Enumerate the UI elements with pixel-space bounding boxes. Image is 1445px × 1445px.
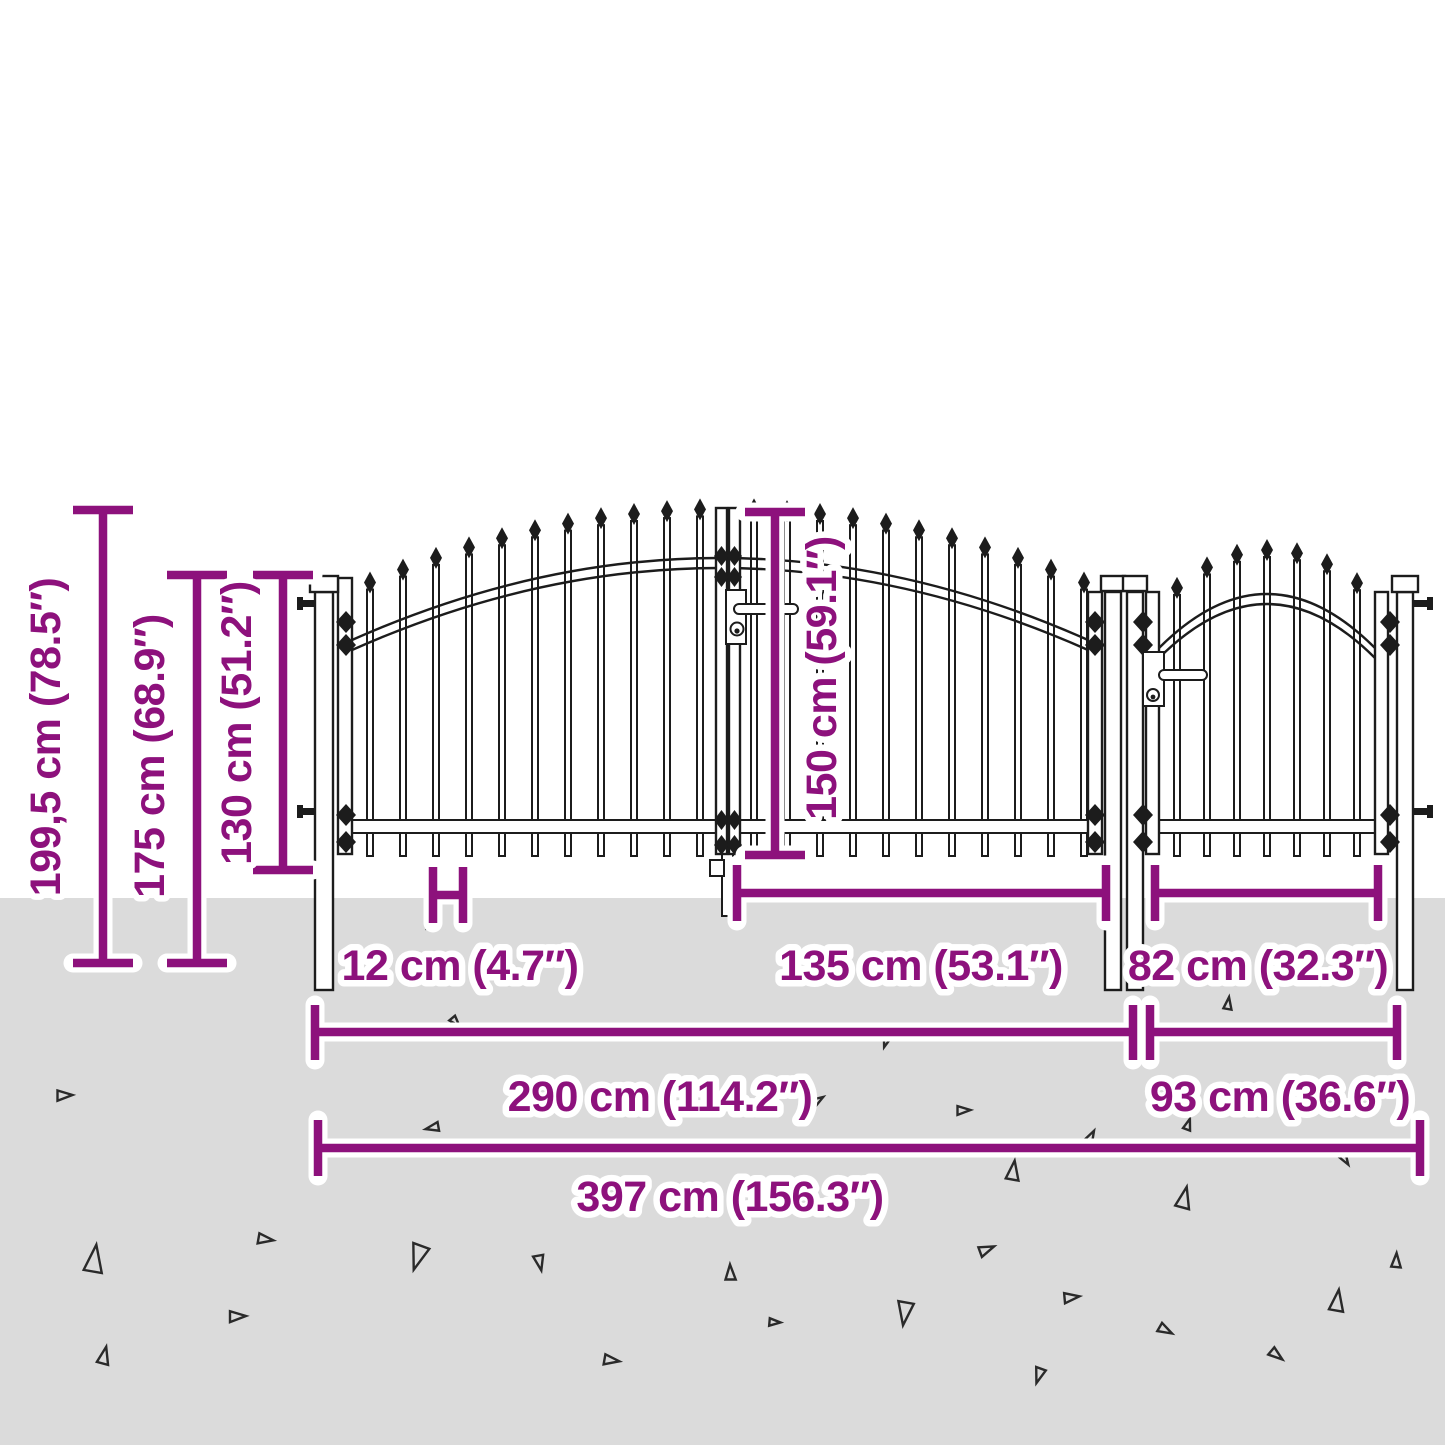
diagram-canvas: 199,5 cm (78.5″) 175 cm (68.9″) 130 cm (…	[0, 0, 1445, 1445]
spear-bar	[364, 572, 376, 856]
dim-leaf-height-label: 150 cm (59.1″)	[798, 536, 846, 820]
dim-double-width-label: 290 cm (114.2″)	[508, 1073, 813, 1121]
spear-bar	[1261, 539, 1273, 856]
spear-bar	[1201, 556, 1213, 856]
single-gate-bottom-rail	[1159, 820, 1375, 833]
spear-bar	[628, 503, 640, 856]
dim-leaf-width-label: 135 cm (53.1″)	[779, 942, 1063, 990]
spear-bar	[397, 559, 409, 856]
spear-bar	[694, 498, 706, 856]
dim-bar-spacing-label: 12 cm (4.7″)	[342, 942, 579, 990]
spear-bar	[1291, 542, 1303, 856]
spear-bar	[595, 507, 607, 856]
dim-total-height-line	[73, 510, 133, 963]
spear-bar	[748, 498, 760, 856]
dim-above-ground-line	[253, 575, 313, 870]
spear-bar	[1045, 559, 1057, 856]
spear-bar	[661, 500, 673, 856]
spear-bar	[430, 547, 442, 856]
dim-post-height-label: 175 cm (68.9″)	[126, 614, 174, 898]
spear-bar	[979, 536, 991, 856]
spear-bar	[496, 527, 508, 856]
dim-total-width-label: 397 cm (156.3″)	[576, 1173, 883, 1221]
spear-bar	[529, 519, 541, 856]
dim-single-width-label: 93 cm (36.6″)	[1150, 1073, 1410, 1121]
dim-small-inner-label: 82 cm (32.3″)	[1128, 942, 1388, 990]
double-gate-left-leaf-bars	[364, 498, 706, 856]
spear-bar	[1321, 553, 1333, 856]
spear-bar	[562, 513, 574, 856]
spear-bar	[1171, 577, 1183, 856]
spear-bar	[1351, 572, 1363, 856]
single-gate-bars	[1171, 539, 1363, 856]
spear-bar	[847, 507, 859, 856]
spear-bar	[880, 513, 892, 856]
spear-bar	[913, 519, 925, 856]
spear-bar	[946, 527, 958, 856]
dim-above-ground-label: 130 cm (51.2″)	[213, 581, 261, 865]
spear-bar	[1012, 547, 1024, 856]
spear-bar	[1231, 544, 1243, 856]
dim-total-height-label: 199,5 cm (78.5″)	[22, 578, 70, 897]
spear-bar	[463, 536, 475, 856]
product-dimension-diagram: 199,5 cm (78.5″) 175 cm (68.9″) 130 cm (…	[0, 0, 1445, 1445]
